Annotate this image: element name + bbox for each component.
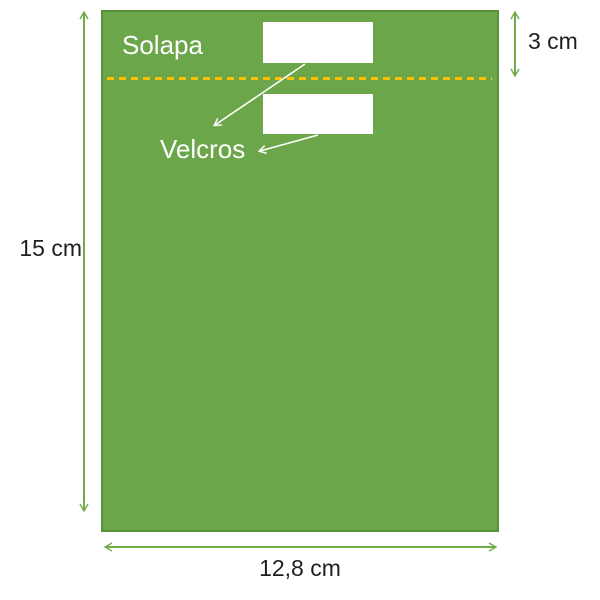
flap-label: Solapa bbox=[122, 30, 203, 60]
fold-dashed-line bbox=[107, 77, 492, 80]
velcro-strip-top bbox=[263, 22, 373, 63]
diagram-canvas: Solapa Velcros 15 cm 3 cm 12,8 cm bbox=[0, 0, 600, 600]
flap-dimension-label: 3 cm bbox=[528, 28, 578, 55]
height-dimension-label: 15 cm bbox=[10, 235, 82, 262]
velcros-label: Velcros bbox=[160, 134, 245, 164]
velcro-strip-bottom bbox=[263, 94, 373, 134]
bag-body: Solapa Velcros bbox=[101, 10, 499, 532]
width-dimension-label: 12,8 cm bbox=[245, 555, 355, 582]
